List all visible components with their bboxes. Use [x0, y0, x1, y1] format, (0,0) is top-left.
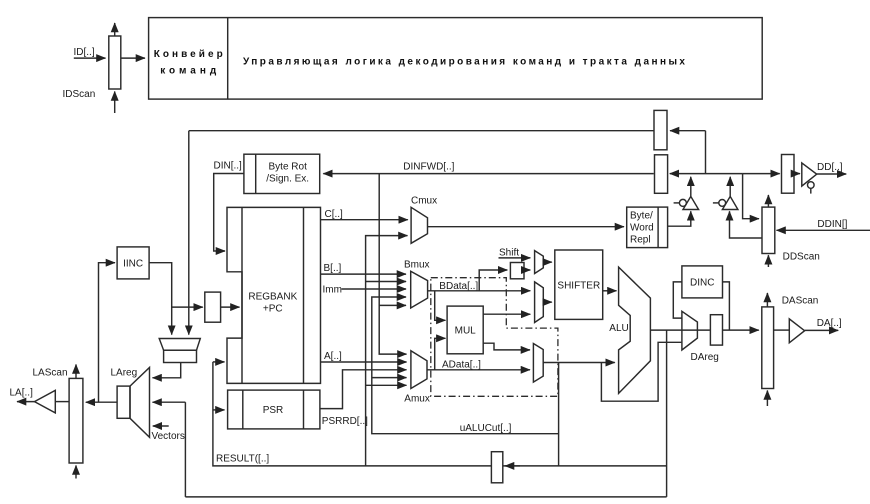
svg-text:Конвейер: Конвейер	[154, 49, 223, 60]
svg-text:Amux: Amux	[404, 393, 430, 404]
svg-text:B[..]: B[..]	[324, 263, 342, 274]
svg-text:DAScan: DAScan	[782, 295, 819, 306]
svg-text:Byte/: Byte/	[630, 211, 653, 222]
svg-text:LAScan: LAScan	[33, 368, 68, 379]
svg-text:RESULT([..]: RESULT([..]	[216, 454, 269, 465]
svg-text:ALU: ALU	[609, 323, 628, 334]
svg-text:A[..]: A[..]	[324, 351, 342, 362]
svg-text:DD[..]: DD[..]	[817, 162, 843, 173]
svg-text:IINC: IINC	[123, 259, 143, 270]
svg-text:DA[..]: DA[..]	[817, 318, 842, 329]
svg-text:uALUCut[..]: uALUCut[..]	[460, 423, 512, 434]
svg-text:PSR: PSR	[263, 405, 284, 416]
svg-text:Word: Word	[630, 223, 654, 234]
svg-text:IDScan: IDScan	[63, 89, 96, 100]
svg-text:Imm: Imm	[323, 284, 342, 295]
svg-text:Cmux: Cmux	[411, 195, 437, 206]
svg-text:DDScan: DDScan	[783, 252, 820, 263]
svg-text:+PC: +PC	[263, 304, 283, 315]
svg-text:Byte Rot: Byte Rot	[269, 162, 308, 173]
svg-text:C[..]: C[..]	[325, 209, 344, 220]
svg-text:DIN[..]: DIN[..]	[214, 161, 243, 172]
svg-text:DINFWD[..]: DINFWD[..]	[403, 161, 454, 172]
svg-text:AData[..]: AData[..]	[442, 359, 481, 370]
svg-text:PSRRD[..]: PSRRD[..]	[322, 416, 368, 427]
svg-text:/Sign. Ex.: /Sign. Ex.	[266, 174, 309, 185]
svg-text:MUL: MUL	[455, 326, 477, 337]
svg-text:Bmux: Bmux	[404, 260, 430, 271]
svg-text:Repl: Repl	[630, 235, 651, 246]
svg-text:Vectors: Vectors	[152, 431, 185, 442]
svg-text:SHIFTER: SHIFTER	[557, 280, 600, 291]
svg-text:LAreg: LAreg	[111, 368, 138, 379]
svg-text:DDIN[]: DDIN[]	[817, 219, 847, 230]
svg-text:Управляющая логика декодирован: Управляющая логика декодирования команд …	[243, 57, 685, 68]
svg-text:команд: команд	[160, 65, 217, 76]
svg-text:REGBANK: REGBANK	[248, 292, 297, 303]
svg-text:Shift: Shift	[499, 248, 519, 259]
svg-text:DAreg: DAreg	[691, 352, 719, 363]
svg-text:DINC: DINC	[690, 277, 714, 288]
svg-text:ID[..]: ID[..]	[74, 47, 95, 58]
svg-text:LA[..]: LA[..]	[10, 388, 34, 399]
